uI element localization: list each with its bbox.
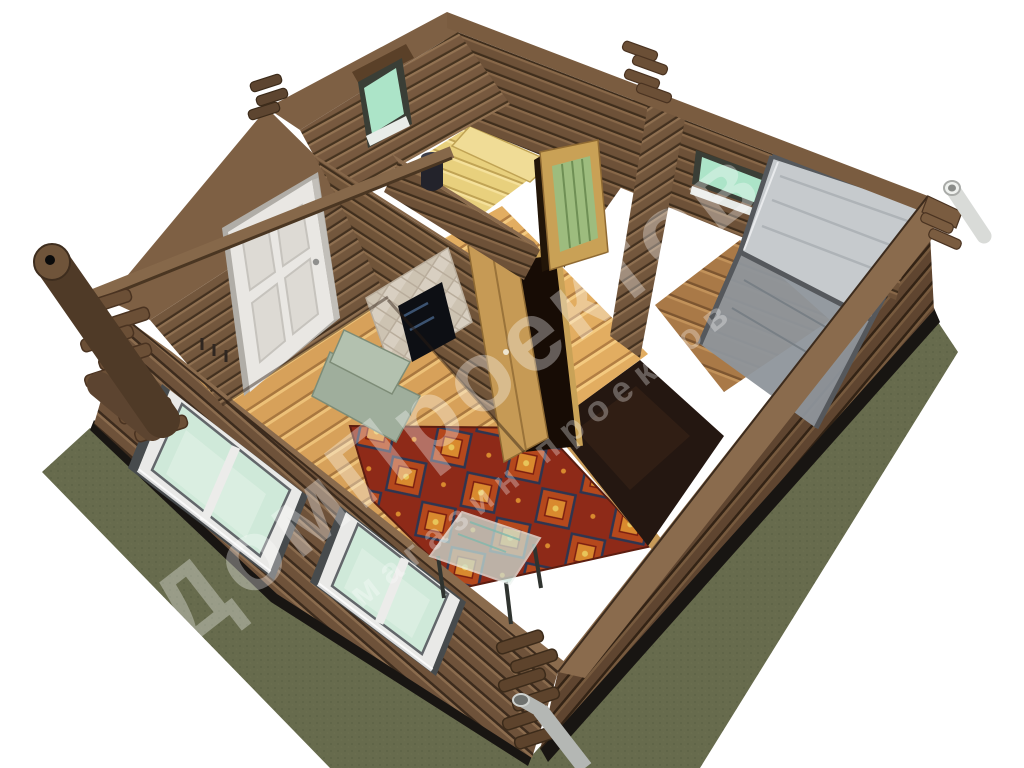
pipe-bore	[948, 185, 956, 192]
render-canvas: ДомПроектов магазин проектов	[0, 0, 1024, 768]
pole-hole	[45, 255, 55, 265]
door-knob	[313, 259, 319, 265]
downspout-opening	[513, 694, 529, 706]
log-house-render: ДомПроектов магазин проектов	[0, 0, 1024, 768]
